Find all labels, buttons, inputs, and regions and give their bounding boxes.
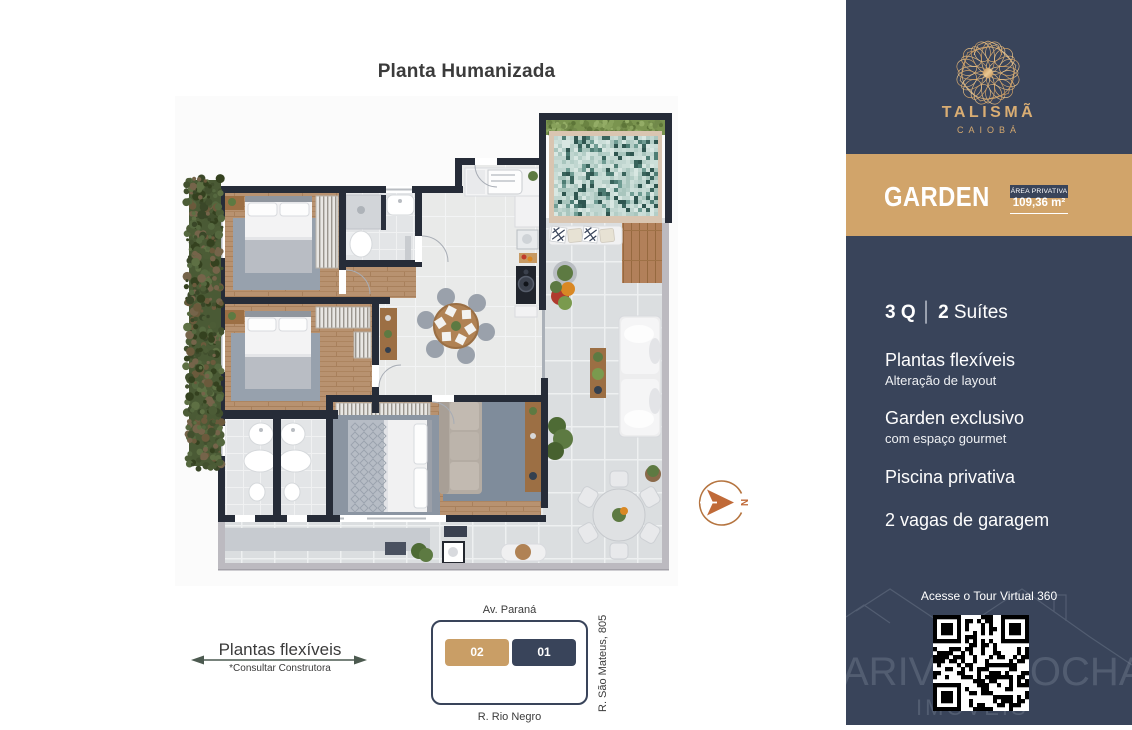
svg-text:N: N (738, 499, 749, 506)
